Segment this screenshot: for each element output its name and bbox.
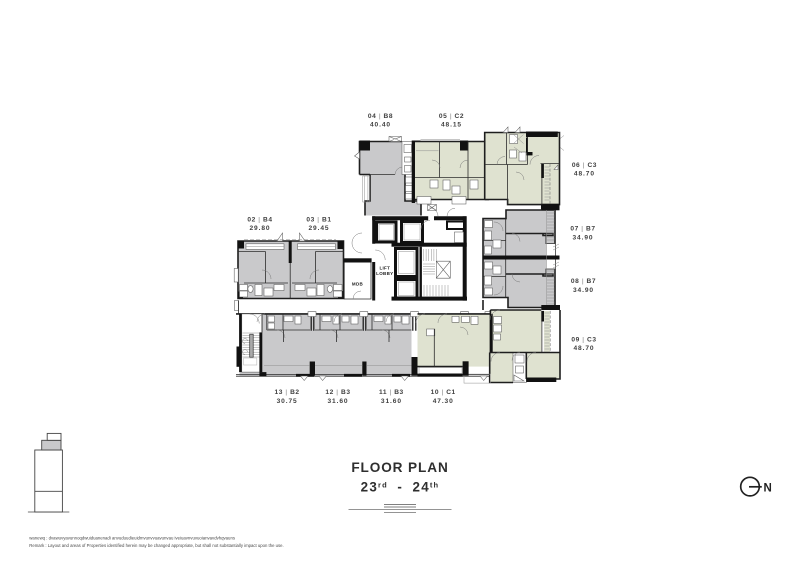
svg-text:MDB: MDB	[352, 282, 364, 287]
svg-text:02 | B4: 02 | B4	[247, 217, 272, 224]
svg-text:wanewq : dvawuvyavunnoqdwuidua: wanewq : dvawuvyavunnoqdwuiduanenadi anv…	[29, 536, 235, 541]
svg-text:11 | B3: 11 | B3	[379, 389, 404, 396]
svg-text:34.90: 34.90	[572, 235, 593, 242]
svg-text:48.15: 48.15	[441, 122, 462, 129]
svg-text:LIFT: LIFT	[379, 266, 390, 271]
svg-text:FLOOR PLAN: FLOOR PLAN	[351, 460, 448, 475]
svg-text:29.45: 29.45	[308, 225, 329, 232]
svg-text:10 | C1: 10 | C1	[431, 389, 456, 396]
svg-text:47.30: 47.30	[433, 398, 454, 405]
svg-text:12 | B3: 12 | B3	[325, 389, 350, 396]
svg-text:Remark : Layout and areas of P: Remark : Layout and areas of Properties …	[29, 543, 283, 548]
svg-text:48.70: 48.70	[573, 345, 594, 352]
svg-text:13 | B2: 13 | B2	[275, 389, 300, 396]
svg-text:04 | B8: 04 | B8	[368, 113, 393, 120]
svg-text:N: N	[764, 482, 772, 494]
svg-text:48.70: 48.70	[574, 171, 595, 178]
svg-text:03 | B1: 03 | B1	[306, 217, 331, 224]
svg-text:06 | C3: 06 | C3	[572, 162, 597, 169]
svg-text:31.60: 31.60	[327, 398, 348, 405]
svg-text:05 | C2: 05 | C2	[439, 113, 464, 120]
svg-text:08 | B7: 08 | B7	[571, 278, 596, 285]
svg-text:29.80: 29.80	[249, 225, 270, 232]
svg-text:23rd-24th: 23rd-24th	[361, 480, 440, 495]
svg-text:34.90: 34.90	[573, 287, 594, 294]
svg-text:07 | B7: 07 | B7	[570, 226, 595, 233]
svg-text:09 | C3: 09 | C3	[571, 336, 596, 343]
svg-text:31.60: 31.60	[381, 398, 402, 405]
svg-text:40.40: 40.40	[370, 122, 391, 129]
svg-text:LOBBY: LOBBY	[376, 271, 393, 276]
svg-text:30.75: 30.75	[277, 398, 298, 405]
